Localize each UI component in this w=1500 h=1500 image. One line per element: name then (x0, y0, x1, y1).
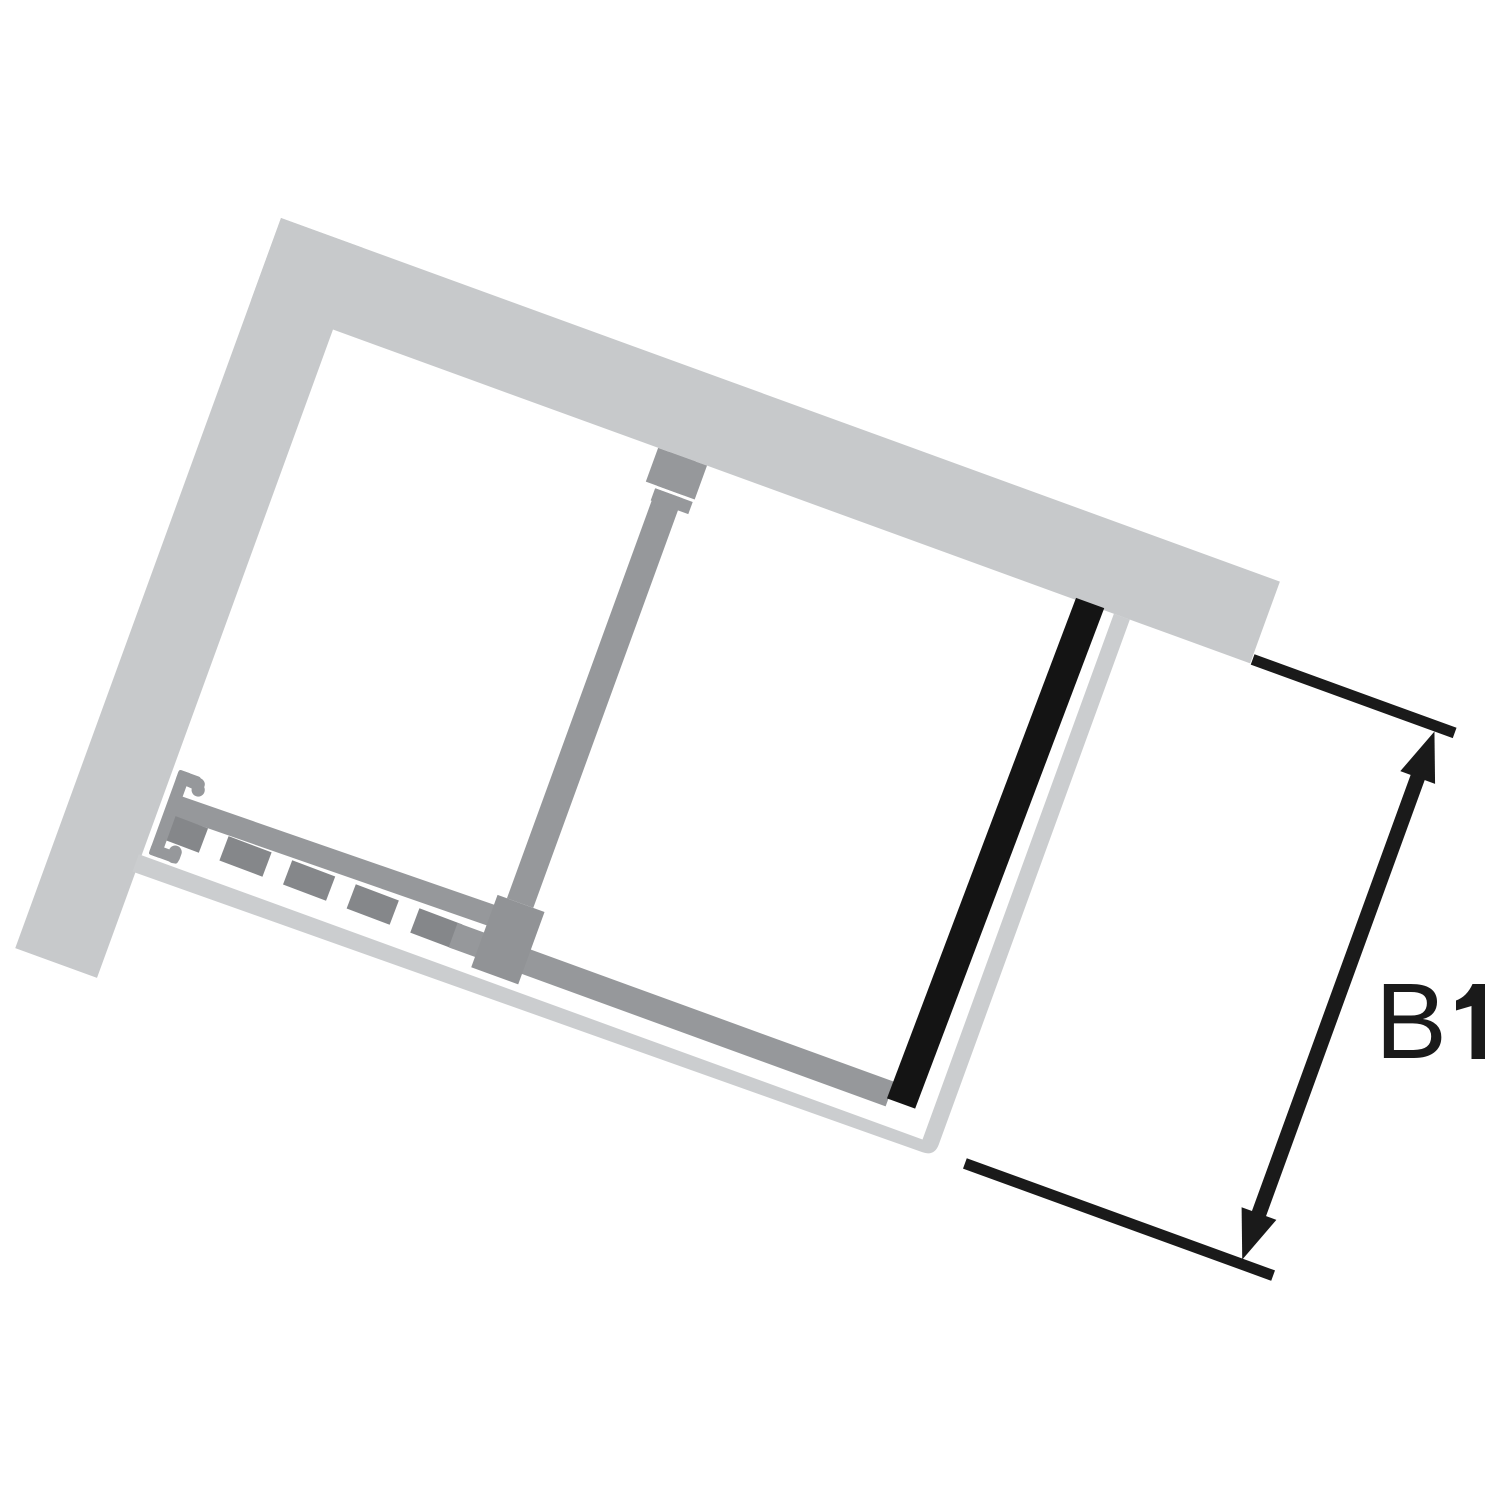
svg-text:B: B (1375, 960, 1447, 1081)
